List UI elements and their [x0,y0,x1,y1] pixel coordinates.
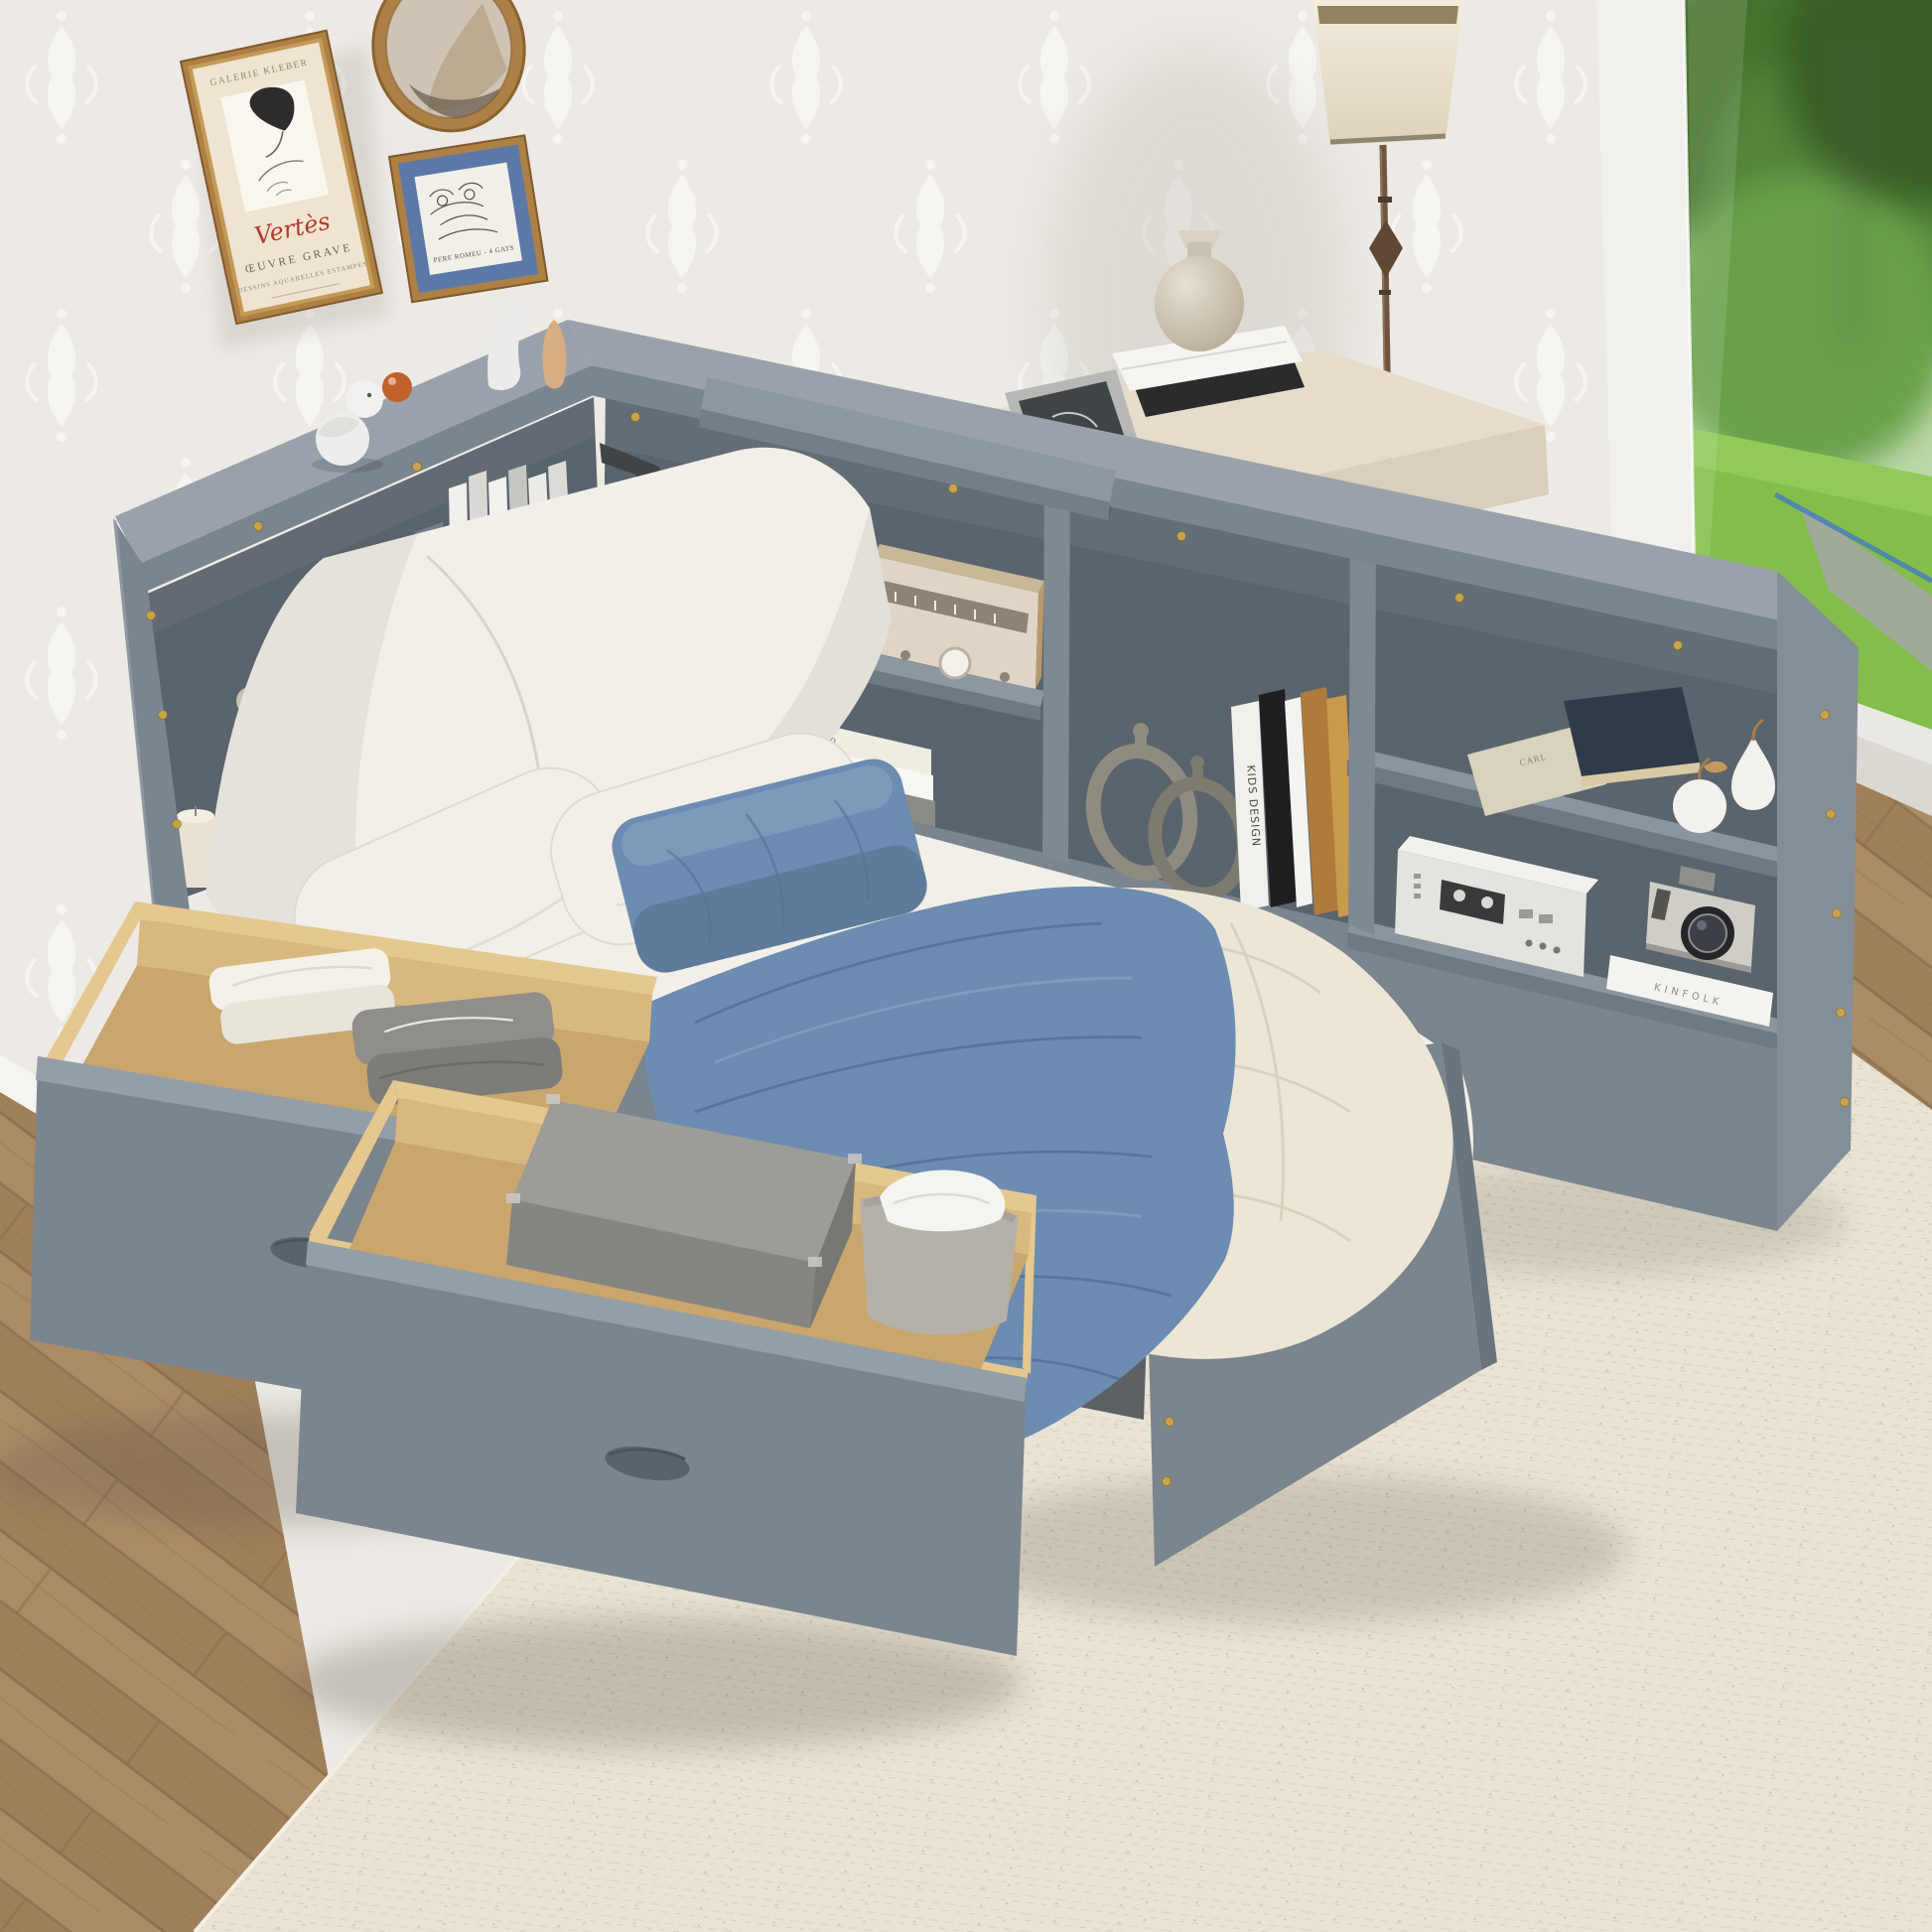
fabric-basket [860,1171,1019,1335]
shelf-divider-1 [1042,473,1070,864]
orange-ball [382,372,412,402]
bookcase-end-panel [1777,571,1859,1231]
shade-top-ring [1317,6,1458,24]
tree-trunk [1849,40,1858,347]
gallery-frame-cats: PERE ROMEU - 4 GATS [389,135,547,302]
bedroom-photo: GALERIE KLEBER Vertès ŒUVRE GRAVE DESSIN… [0,0,1932,1932]
navy-book [1564,687,1700,776]
vertical-books: KIDS DESIGN [1231,687,1358,917]
shelf-divider-2 [1348,536,1376,935]
radio-knob [940,648,970,678]
